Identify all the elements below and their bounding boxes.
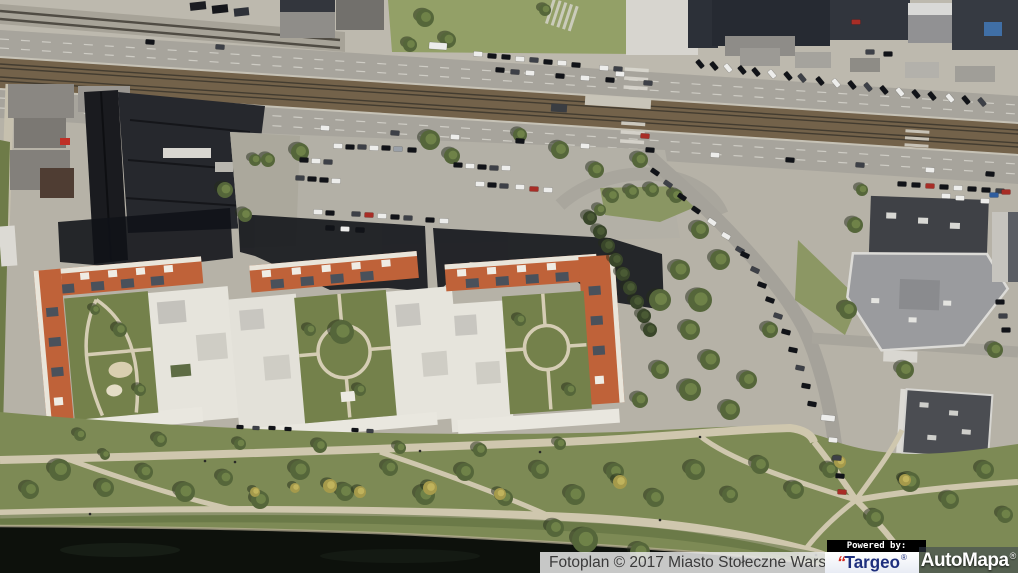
automapa-logo[interactable]: AutoMapa ®: [919, 547, 1018, 573]
aerial-imagery[interactable]: [0, 0, 1018, 573]
automapa-registered-mark: ®: [1010, 551, 1017, 561]
targeo-quote-icon: “: [836, 558, 845, 568]
bottom-right-building: [896, 389, 992, 459]
map-viewport[interactable]: Fotoplan © 2017 Miasto Stołeczne Warszaw…: [0, 0, 1018, 573]
attribution-text: Fotoplan © 2017 Miasto Stołeczne Warszaw…: [549, 554, 862, 571]
targeo-wordmark: Targeo: [845, 552, 900, 573]
crosswalk-right: [904, 129, 929, 148]
targeo-registered-mark: ®: [901, 553, 907, 562]
powered-by-label: Powered by:: [827, 540, 926, 552]
targeo-logo[interactable]: “ Targeo ®: [825, 552, 919, 573]
automapa-wordmark: AutoMapa: [921, 549, 1009, 573]
attribution-bar: Fotoplan © 2017 Miasto Stołeczne Warszaw…: [540, 552, 832, 573]
